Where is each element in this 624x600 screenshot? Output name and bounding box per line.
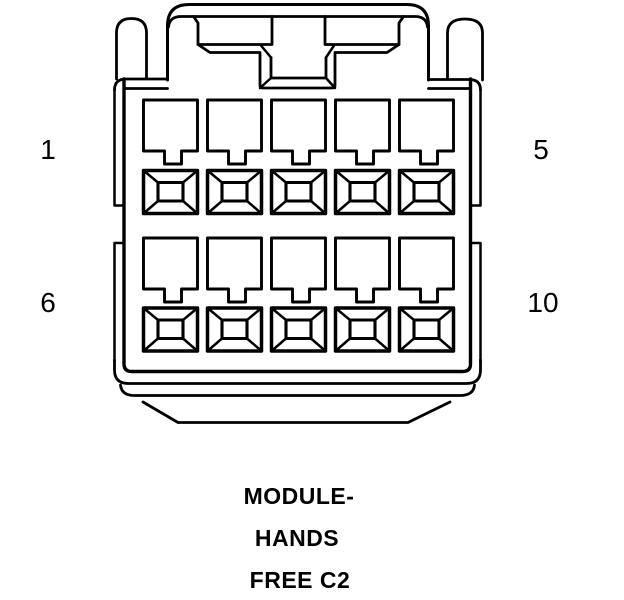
socket-bevels-row2-col1 <box>144 308 198 351</box>
cavity-row2-col5 <box>400 238 454 302</box>
body-outline <box>124 79 471 372</box>
terminal-cavities <box>144 100 454 351</box>
socket-bevels-row1-col3 <box>272 171 326 214</box>
connector-latch <box>194 17 404 89</box>
socket-bevels-row2-col5 <box>400 308 454 351</box>
socket-inner-row2-col5 <box>414 320 439 339</box>
socket-inner-row1-col2 <box>222 183 247 202</box>
socket-inner-row2-col3 <box>286 320 311 339</box>
bottom-wedge <box>143 402 450 423</box>
socket-inner-row1-col1 <box>158 183 183 202</box>
connector-body <box>115 79 481 372</box>
socket-bevels-row2-col3 <box>272 308 326 351</box>
cavity-row1-col2 <box>208 100 262 164</box>
bottom-shell-inner <box>121 385 475 396</box>
caption-line-2: HANDS <box>255 525 339 551</box>
socket-inner-row1-col4 <box>350 183 375 202</box>
caption-line-1: MODULE- <box>244 483 355 509</box>
pin-label-5: 5 <box>533 134 549 165</box>
right-shoulder <box>429 80 481 91</box>
cap-inner-band <box>169 17 428 28</box>
connector-caption: MODULE- HANDS FREE C2 <box>244 483 355 593</box>
cavity-row2-col4 <box>336 238 390 302</box>
socket-bevels-row1-col2 <box>208 171 262 214</box>
connector-bottom <box>115 360 481 423</box>
cavity-row2-col3 <box>272 238 326 302</box>
caption-line-3: FREE C2 <box>250 567 351 593</box>
cavity-row1-col1 <box>144 100 198 164</box>
socket-bevels-row1-col1 <box>144 171 198 214</box>
cavity-row2-col2 <box>208 238 262 302</box>
connector-diagram-page: 1 5 6 10 MODULE- HANDS FREE C2 <box>0 0 624 600</box>
socket-bevels-row1-col5 <box>400 171 454 214</box>
right-ear <box>448 19 483 80</box>
socket-inner-row1-col5 <box>414 183 439 202</box>
connector-top-cap <box>168 5 429 81</box>
socket-inner-row2-col1 <box>158 320 183 339</box>
socket-inner-row2-col4 <box>350 320 375 339</box>
connector-diagram: 1 5 6 10 MODULE- HANDS FREE C2 <box>0 0 624 600</box>
socket-bevels-row1-col4 <box>336 171 390 214</box>
left-ear <box>117 19 147 80</box>
socket-bevels-row2-col2 <box>208 308 262 351</box>
socket-bevels-row2-col4 <box>336 308 390 351</box>
cavity-row1-col3 <box>272 100 326 164</box>
socket-inner-row2-col2 <box>222 320 247 339</box>
cavity-row1-col5 <box>400 100 454 164</box>
socket-inner-row1-col3 <box>286 183 311 202</box>
pin-label-1: 1 <box>40 134 56 165</box>
pin-label-6: 6 <box>40 287 56 318</box>
cavity-row1-col4 <box>336 100 390 164</box>
pin-label-10: 10 <box>527 287 558 318</box>
cavity-row2-col1 <box>144 238 198 302</box>
latch-face <box>198 17 399 79</box>
